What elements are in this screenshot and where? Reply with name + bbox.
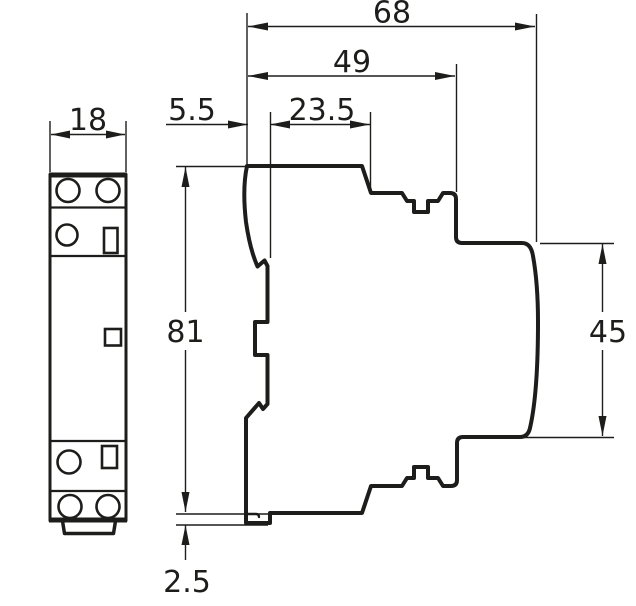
arrowhead-down <box>599 416 607 436</box>
dim-rail-offset: 5.5 <box>166 93 248 129</box>
dim-overall-height: 81 <box>166 167 246 513</box>
terminal-screw-top-right <box>97 179 120 202</box>
technical-drawing: 18 68 49 5.5 <box>0 0 636 606</box>
dim-label-2-5: 2.5 <box>163 565 211 600</box>
drawing-canvas: 18 68 49 5.5 <box>0 0 636 606</box>
terminal-screw-bottom-left <box>59 495 82 518</box>
dim-label-23-5: 23.5 <box>289 93 356 128</box>
arrowhead-up <box>182 525 190 545</box>
side-profile-outline <box>244 166 538 523</box>
terminal-clamp-row3 <box>102 446 117 468</box>
arrowhead-up <box>599 244 607 264</box>
arrowhead-right <box>106 131 125 139</box>
arrowhead-up <box>182 167 190 187</box>
dim-label-45: 45 <box>589 315 627 350</box>
arrowhead-left <box>248 72 268 80</box>
side-view <box>244 166 538 523</box>
arrowhead-right <box>515 23 535 31</box>
arrowhead-left <box>51 131 70 139</box>
dim-label-81: 81 <box>166 315 204 350</box>
indicator-square <box>105 329 121 346</box>
terminal-screw-row2 <box>57 225 78 246</box>
front-bottom-tab <box>63 521 116 534</box>
dim-label-18: 18 <box>69 103 107 138</box>
dimensions: 18 68 49 5.5 <box>50 0 627 600</box>
dim-front-width: 18 <box>50 103 126 172</box>
arrowhead-right <box>435 72 455 80</box>
arrowhead-left <box>248 23 268 31</box>
dim-mid-depth: 23.5 <box>270 93 371 258</box>
front-view <box>49 175 127 534</box>
terminal-screw-row3 <box>58 451 81 474</box>
arrowhead-down <box>182 492 190 512</box>
terminal-screw-bottom-right <box>97 495 120 518</box>
arrowhead-left <box>270 121 290 129</box>
dim-bottom-offset: 2.5 <box>163 514 268 600</box>
terminal-clamp-row2 <box>104 228 118 253</box>
dim-label-68: 68 <box>373 0 411 31</box>
arrowhead-right <box>228 121 248 129</box>
terminal-screw-top-left <box>57 179 80 202</box>
dim-label-49: 49 <box>333 45 371 80</box>
dim-label-5-5: 5.5 <box>168 93 216 128</box>
